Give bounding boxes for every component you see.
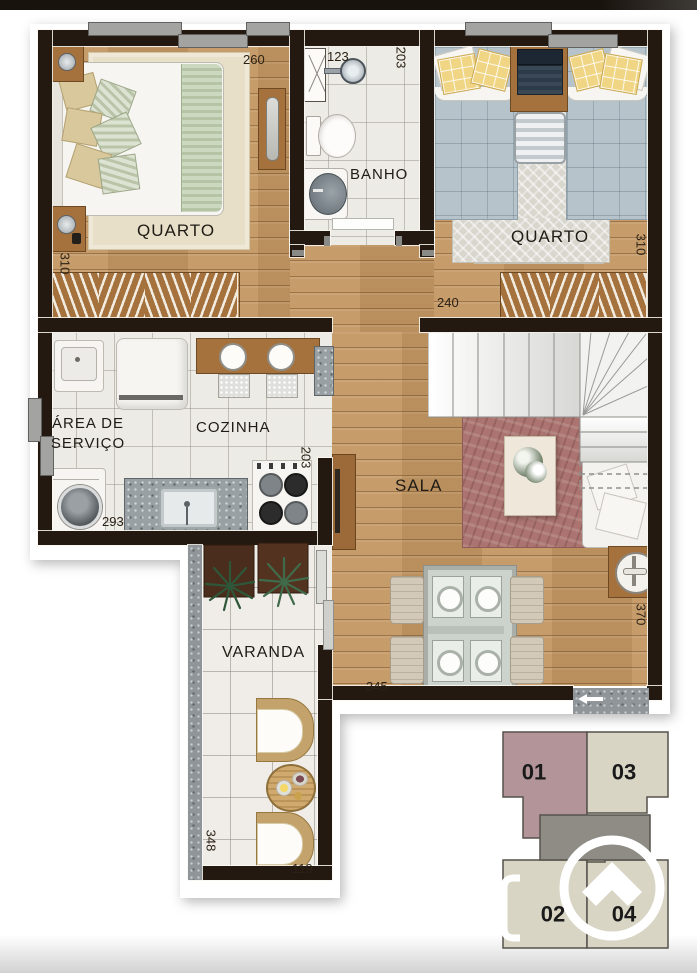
core-block xyxy=(540,815,650,860)
counter-return xyxy=(314,346,334,396)
dim-310-quarto1: 310 xyxy=(57,253,72,275)
dim-293: 293 xyxy=(102,514,124,529)
laptop-keyboard xyxy=(517,65,563,95)
desk xyxy=(510,46,568,112)
unit-04-number: 04 xyxy=(612,902,637,927)
door-jamb xyxy=(396,236,402,246)
wall-quarto2-bottom xyxy=(420,318,662,332)
quarto1-wardrobe xyxy=(52,272,240,320)
dining-chair xyxy=(390,576,424,624)
varanda-sliding-door xyxy=(323,600,334,650)
shower-box xyxy=(304,48,326,102)
wall-kitchen-sala xyxy=(318,458,332,545)
dim-348: 348 xyxy=(203,830,218,852)
varanda-sliding-door xyxy=(316,550,327,604)
entry-arrow-icon xyxy=(578,694,587,704)
dining-setting xyxy=(432,640,464,682)
dim-370: 370 xyxy=(633,604,648,626)
wall-sala-varanda xyxy=(318,645,332,700)
wall-bottom-sala xyxy=(647,686,662,700)
dim-260: 260 xyxy=(243,52,265,67)
bar-stool xyxy=(218,374,250,398)
tall-cabinet-mirror xyxy=(258,88,286,170)
key-plan: 01 03 02 04 xyxy=(490,715,680,960)
bar-stool xyxy=(266,374,298,398)
wall-right xyxy=(648,30,662,700)
door-jamb xyxy=(422,250,434,256)
desk-chair xyxy=(514,112,566,164)
dim-240: 240 xyxy=(437,295,459,310)
washer-door xyxy=(58,485,102,529)
refrigerator xyxy=(116,338,188,410)
banho-window xyxy=(246,22,290,36)
stove xyxy=(252,460,312,534)
checkered-pillow xyxy=(599,53,643,95)
dim-203-cozinha: 203 xyxy=(298,447,313,469)
nightstand xyxy=(52,46,84,82)
wall-quarto1-bottom xyxy=(38,318,332,332)
sala-label: SALA xyxy=(395,476,442,496)
banho-door-leaf xyxy=(332,218,394,230)
dining-setting xyxy=(432,576,464,618)
lamp-icon xyxy=(58,53,76,71)
lamp-icon xyxy=(57,215,76,234)
area-servico-label: ÁREA DE SERVIÇO xyxy=(45,414,131,454)
banho-label: BANHO xyxy=(350,166,408,183)
laptop-icon xyxy=(517,49,563,65)
quarto1-window xyxy=(88,22,182,36)
planters xyxy=(200,540,320,622)
dim-119: 119 xyxy=(292,861,313,876)
place-setting xyxy=(219,343,247,371)
cozinha-label: COZINHA xyxy=(196,419,271,436)
door-jamb xyxy=(324,236,330,246)
quarto2-wardrobe xyxy=(500,272,648,320)
dining-table xyxy=(424,566,516,698)
round-table xyxy=(266,764,316,812)
sofa-cushion xyxy=(595,492,647,540)
quarto1-window xyxy=(178,34,248,48)
burner xyxy=(259,473,283,497)
sink-basin xyxy=(309,173,347,215)
dim-203-banho: 203 xyxy=(393,47,408,69)
bed-pillow xyxy=(98,154,141,195)
nightstand xyxy=(52,206,86,252)
wall-banho-quarto2 xyxy=(420,30,434,245)
quarto2-window xyxy=(465,22,552,36)
toilet-bowl xyxy=(318,114,356,158)
floor-plan: QUARTO BANHO QUARTO ÁREA DE SERVIÇO COZI… xyxy=(0,0,697,973)
burner xyxy=(284,501,308,525)
kitchen-counter xyxy=(124,478,248,534)
staircase xyxy=(428,332,648,490)
washing-machine xyxy=(48,468,106,534)
laundry-tank xyxy=(54,340,104,392)
food-plate xyxy=(276,780,292,796)
unit-02-number: 02 xyxy=(541,902,565,927)
burner xyxy=(284,473,308,497)
breakfast-bar xyxy=(196,338,320,374)
dim-310-quarto2: 310 xyxy=(633,234,648,256)
varanda-label: VARANDA xyxy=(222,644,305,662)
unit-01-number: 01 xyxy=(522,760,546,785)
food-plate xyxy=(292,772,308,786)
dining-setting xyxy=(470,640,502,682)
bed-blanket xyxy=(181,64,222,212)
tv-panel xyxy=(332,454,356,550)
dining-chair xyxy=(510,636,544,684)
bathroom-sink xyxy=(304,168,348,220)
dining-chair xyxy=(390,636,424,684)
quarto2-label: QUARTO xyxy=(511,227,589,247)
place-setting xyxy=(267,343,295,371)
unit-03-number: 03 xyxy=(612,760,636,785)
mirror xyxy=(266,97,279,161)
quarto1-label: QUARTO xyxy=(137,221,215,241)
entry-arrow-stem xyxy=(587,697,603,701)
wall-varanda-right xyxy=(318,700,332,880)
dining-chair xyxy=(510,576,544,624)
dim-345: 345 xyxy=(366,679,388,694)
burner xyxy=(259,501,283,525)
wall-quarto1-banho xyxy=(290,30,304,245)
phone-icon xyxy=(72,233,81,244)
quarto2-window xyxy=(548,34,618,48)
wicker-chair xyxy=(256,698,314,762)
dining-setting xyxy=(470,576,502,618)
dim-123: 123 xyxy=(327,49,349,64)
kitchen-sink xyxy=(159,487,219,529)
door-jamb xyxy=(292,250,304,256)
